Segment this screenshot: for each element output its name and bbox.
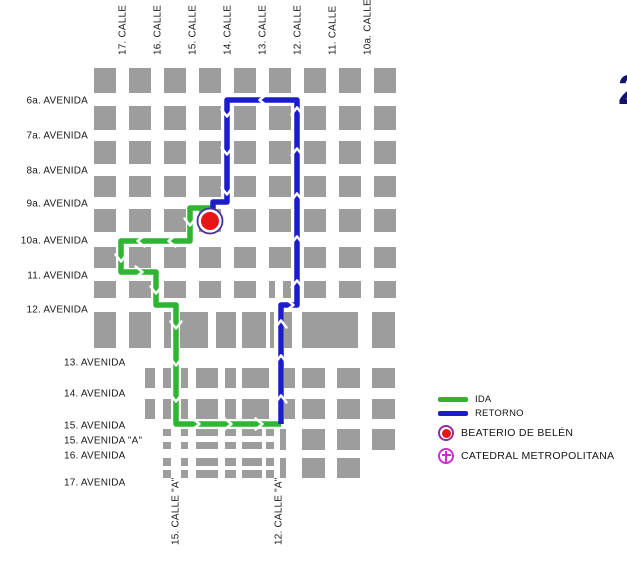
city-block <box>94 247 116 268</box>
avenue-label: 7a. AVENIDA <box>27 131 89 142</box>
city-block <box>164 209 186 232</box>
city-block <box>225 429 236 436</box>
city-block <box>374 176 396 197</box>
city-block <box>337 458 360 478</box>
avenue-label: 15. AVENIDA "A" <box>64 436 143 447</box>
street-label-bottom: 15. CALLE "A" <box>171 477 182 545</box>
city-block <box>304 247 326 268</box>
city-block <box>199 106 221 130</box>
legend-ida-label: IDA <box>475 394 491 405</box>
city-block <box>374 209 396 232</box>
street-grid-map: 17. CALLE16. CALLE15. CALLE14. CALLE13. … <box>0 0 627 565</box>
city-block <box>339 209 361 232</box>
city-block <box>242 399 269 419</box>
street-label-top: 10a. CALLE <box>363 0 374 55</box>
city-block <box>164 141 186 164</box>
city-block <box>304 209 326 232</box>
avenue-label: 14. AVENIDA <box>64 389 126 400</box>
city-block <box>196 429 218 436</box>
city-block <box>339 68 361 93</box>
street-label-top: 16. CALLE <box>153 5 164 55</box>
city-block <box>181 399 188 419</box>
city-block <box>199 247 221 268</box>
city-block <box>339 247 361 268</box>
city-block <box>129 68 151 93</box>
avenue-label: 6a. AVENIDA <box>27 96 89 107</box>
street-label-bottom: 12. CALLE "A" <box>274 477 285 545</box>
city-block <box>163 458 171 466</box>
city-block <box>199 176 221 197</box>
city-block <box>304 281 326 298</box>
city-block <box>266 458 274 466</box>
city-block <box>372 312 395 348</box>
city-block <box>269 247 291 268</box>
catedral-cross-icon <box>438 448 454 464</box>
city-block <box>304 106 326 130</box>
legend-catedral-label: CATEDRAL METROPOLITANA <box>461 450 614 462</box>
city-block <box>234 281 256 298</box>
city-block <box>269 68 291 93</box>
city-block <box>284 368 295 388</box>
city-block <box>196 458 218 466</box>
city-block <box>269 106 291 130</box>
city-block <box>94 209 116 232</box>
ida-line-swatch <box>438 397 468 402</box>
city-block <box>304 176 326 197</box>
city-block <box>269 281 275 298</box>
avenue-label: 17. AVENIDA <box>64 478 126 489</box>
city-block <box>94 68 116 93</box>
city-block <box>339 141 361 164</box>
city-block <box>225 399 236 419</box>
city-block <box>302 312 358 348</box>
city-block <box>302 458 325 478</box>
city-block <box>164 312 171 348</box>
city-block <box>129 281 151 298</box>
city-block <box>242 368 269 388</box>
avenue-label: 12. AVENIDA <box>27 305 89 316</box>
city-block <box>234 209 256 232</box>
city-block <box>163 442 171 449</box>
city-block <box>302 368 325 388</box>
street-label-top: 13. CALLE <box>258 5 269 55</box>
city-block <box>164 176 186 197</box>
city-block <box>163 399 171 419</box>
city-block <box>339 106 361 130</box>
city-block <box>94 176 116 197</box>
city-block <box>234 141 256 164</box>
city-block <box>225 470 236 478</box>
city-block <box>145 399 155 419</box>
city-block <box>269 209 291 232</box>
city-block <box>94 141 116 164</box>
city-block <box>94 312 116 348</box>
city-block <box>339 281 361 298</box>
city-block <box>129 312 151 348</box>
city-block <box>242 429 262 436</box>
legend-row-retorno: RETORNO <box>438 408 524 419</box>
city-block <box>374 68 396 93</box>
city-block <box>266 470 274 478</box>
city-block <box>164 106 186 130</box>
beaterio-marker-icon <box>438 425 454 441</box>
city-block <box>337 399 360 419</box>
avenue-label: 13. AVENIDA <box>64 358 126 369</box>
beaterio-dot <box>201 212 219 230</box>
city-block <box>129 247 151 268</box>
city-block <box>242 312 266 348</box>
city-block <box>225 458 236 466</box>
city-block <box>145 368 155 388</box>
city-block <box>270 312 274 348</box>
city-block <box>164 281 186 298</box>
city-block <box>196 470 218 478</box>
city-block <box>269 176 291 197</box>
city-block <box>129 209 151 232</box>
legend-beaterio-label: BEATERIO DE BELÉN <box>461 427 573 439</box>
city-block <box>269 141 291 164</box>
route-map: 17. CALLE16. CALLE15. CALLE14. CALLE13. … <box>0 0 627 565</box>
city-block <box>196 399 218 419</box>
city-block <box>302 429 325 450</box>
city-block <box>337 429 360 450</box>
city-block <box>94 281 116 298</box>
city-block <box>181 368 188 388</box>
city-block <box>129 106 151 130</box>
street-label-top: 11. CALLE <box>328 5 339 55</box>
street-label-top: 14. CALLE <box>223 5 234 55</box>
avenue-label: 10a. AVENIDA <box>21 236 88 247</box>
city-block <box>234 68 256 93</box>
city-block <box>242 458 262 466</box>
city-block <box>372 368 395 388</box>
city-block <box>163 470 171 478</box>
city-block <box>199 68 221 93</box>
city-block <box>339 176 361 197</box>
city-block <box>266 429 274 436</box>
city-block <box>374 141 396 164</box>
city-block <box>180 312 208 348</box>
avenue-label: 15. AVENIDA <box>64 421 126 432</box>
city-block <box>242 470 262 478</box>
city-block <box>337 368 360 388</box>
city-block <box>196 368 218 388</box>
city-block <box>283 281 291 298</box>
city-block <box>163 429 171 436</box>
city-block <box>164 247 186 268</box>
city-block <box>196 442 218 449</box>
city-block <box>225 442 236 449</box>
city-block <box>181 442 188 449</box>
city-block <box>129 141 151 164</box>
legend-retorno-label: RETORNO <box>475 408 524 419</box>
city-block <box>199 281 221 298</box>
legend-row-ida: IDA <box>438 394 491 405</box>
corner-route-number: 2 <box>618 66 627 113</box>
city-block <box>266 442 274 449</box>
city-block <box>302 399 325 419</box>
city-block <box>163 368 171 388</box>
city-block <box>374 106 396 130</box>
city-block <box>372 429 395 450</box>
city-block <box>234 176 256 197</box>
city-block <box>234 247 256 268</box>
avenue-label: 16. AVENIDA <box>64 451 126 462</box>
city-block <box>374 247 396 268</box>
city-block <box>225 368 236 388</box>
city-block <box>304 141 326 164</box>
street-label-top: 15. CALLE <box>188 5 199 55</box>
legend-row-catedral: CATEDRAL METROPOLITANA <box>438 448 614 464</box>
city-block <box>280 458 286 478</box>
city-block <box>181 458 188 466</box>
city-block <box>234 106 256 130</box>
city-block <box>374 281 396 298</box>
avenue-label: 9a. AVENIDA <box>27 199 89 210</box>
city-block <box>242 442 262 449</box>
city-block <box>164 68 186 93</box>
city-block <box>304 68 326 93</box>
city-block <box>284 312 292 348</box>
street-label-top: 17. CALLE <box>118 5 129 55</box>
avenue-label: 11. AVENIDA <box>27 271 88 282</box>
street-label-top: 12. CALLE <box>293 5 304 55</box>
retorno-line-swatch <box>438 411 468 416</box>
city-block <box>129 176 151 197</box>
avenue-label: 8a. AVENIDA <box>27 166 89 177</box>
city-block <box>181 470 188 478</box>
legend-row-beaterio: BEATERIO DE BELÉN <box>438 425 573 441</box>
beaterio-marker <box>198 209 223 234</box>
city-block <box>199 141 221 164</box>
city-block <box>94 106 116 130</box>
city-block <box>372 399 395 419</box>
city-block <box>216 312 236 348</box>
city-block <box>280 429 286 450</box>
city-block <box>181 429 188 436</box>
